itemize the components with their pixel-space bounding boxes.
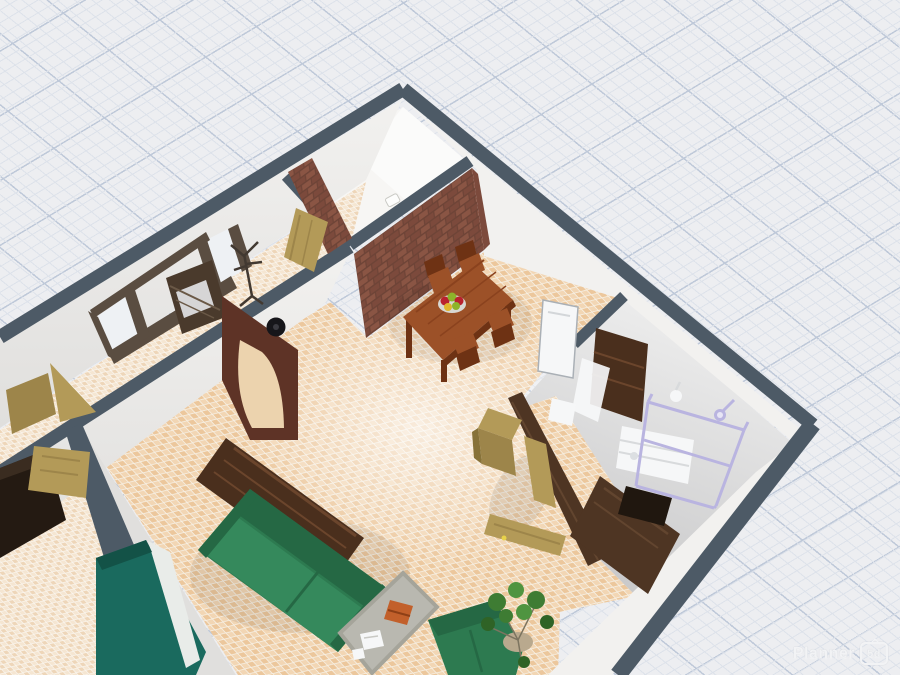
wall-clock[interactable] — [267, 318, 286, 337]
watermark-badge-text: 5d — [867, 648, 881, 660]
white-door[interactable] — [538, 300, 578, 378]
flat-tan-door[interactable] — [28, 446, 90, 498]
watermark-brand: Planner — [793, 645, 855, 663]
floorplan-scene[interactable] — [0, 0, 900, 675]
door-handle — [502, 536, 507, 541]
3d-viewport[interactable]: Planner 5d — [0, 0, 900, 675]
watermark: Planner 5d — [793, 642, 888, 665]
planner5d-logo-icon: 5d — [860, 642, 888, 665]
